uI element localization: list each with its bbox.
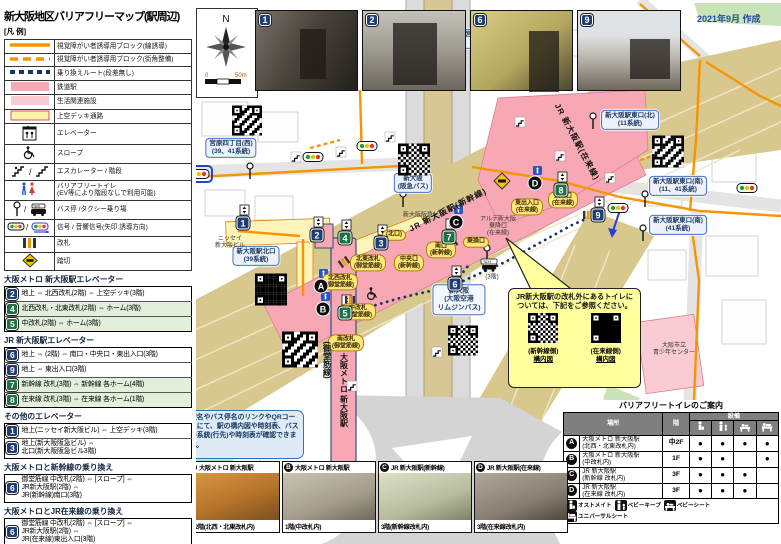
route-dotted-navy-icon [6, 67, 54, 77]
list-item: 6御堂筋線 中改札(2階) ⇔ [スロープ] ⇔ JR新大阪駅(2階) ⇔ JR… [5, 518, 192, 544]
toilet-photo-b: B大阪メトロ 新大阪駅 1階(中改札内) [282, 461, 376, 533]
legend-row: スロープ [5, 145, 192, 164]
stairs-icon [347, 381, 357, 391]
equip-mark: ● [689, 483, 711, 499]
legend-row: 生活関連施設 [5, 95, 192, 110]
toilet-place: 大阪メトロ 新大阪駅 (中改札内) [580, 451, 663, 467]
list-heading-other-elevators: その他のエレベーター [4, 411, 193, 422]
toilet-floor: 3F [663, 467, 689, 483]
zairaisen-transfer-list: 6御堂筋線 中改札(2階) ⇔ [スロープ] ⇔ JR新大阪駅(2階) ⇔ JR… [4, 518, 192, 544]
toilet-floor: 中2F [663, 435, 689, 451]
list-item: 2地上 ⇔ 北西改札(2階) ⇔ 上空デッキ(3階) [5, 287, 192, 302]
photo-badge-2: 2 [366, 14, 378, 26]
equip-mark: ● [756, 435, 778, 451]
elevator-number-badge: 6 [6, 482, 18, 494]
stairs-icon [515, 117, 525, 127]
elevator-icon [446, 219, 455, 229]
equip-mark: ● [712, 451, 734, 467]
ticket-gate-icon [6, 237, 54, 249]
equip-legend: オストメイトベビーキープベビーシートユニバーサルシート [564, 499, 779, 524]
equip-mark [734, 451, 756, 467]
elevator-icon [240, 205, 249, 215]
elevator-icon [558, 172, 567, 182]
callout-text: JR新大阪駅の改札外にあるトイレに ついては、下記をご参照ください。 [512, 292, 637, 311]
toilet-photo-d: DJR 新大阪駅(在来線) 3階(在来線改札内) [474, 461, 568, 533]
elevator-number-badge: 1 [6, 425, 18, 437]
legend-row: 踏切 [5, 252, 192, 271]
metro-elevator-list: 2地上 ⇔ 北西改札(2階) ⇔ 上空デッキ(3階) 4北西改札・北東改札(2階… [4, 286, 192, 332]
toilet-icon [454, 205, 463, 214]
legend-row: 上空デッキ通路 [5, 109, 192, 124]
signal-icon: / [6, 220, 54, 233]
list-item: 3地上(新大阪阪急ビル) ⇔ 北口(新大阪阪急ビル3階) [5, 439, 192, 459]
qr-info-callout: 駅名やバス停名のリンクやQRコードにて、駅の構内図や時刻表、バスの系統(行先)や… [186, 410, 304, 459]
list-item: 4北西改札・北東改札(2階) ⇔ ホーム(3階) [5, 302, 192, 317]
railway-station-swatch [6, 81, 54, 92]
barrier-free-toilet-icon [6, 181, 54, 197]
elevator-photo-1: 1 [255, 10, 358, 91]
list-heading-shinkansen-transfer: 大阪メトロと新幹線の乗り換え [4, 462, 193, 473]
compass-box: N 0 50m [196, 8, 258, 98]
toilet-place: JR 新大阪駅 (新幹線 改札内) [580, 467, 663, 483]
toilet-photo-cards: A大阪メトロ 新大阪駅 中2階(北西・北東改札内) B大阪メトロ 新大阪駅 1階… [186, 461, 568, 533]
equip-mark [756, 483, 778, 499]
toilet-photo-image [379, 473, 471, 520]
compass-north-label: N [222, 14, 229, 25]
legend-row: /TAXIバス停 /タクシー乗り場 [5, 200, 192, 220]
equip-mark: ● [712, 435, 734, 451]
legend-row: エレベーター [5, 124, 192, 145]
equip-mark: ● [756, 451, 778, 467]
stairs-icon [291, 152, 301, 162]
toilet-photo-c: CJR 新大阪駅(新幹線) 3階(新幹線改札内) [378, 461, 472, 533]
equip-mark: ● [734, 483, 756, 499]
list-item: 9地上 ⇔ 東出入口(3階) [5, 363, 192, 378]
page-title: 新大阪地区バリアフリーマップ(駅周辺) [4, 8, 193, 24]
elevator-icon [452, 266, 461, 276]
elevator-number-badge: 5 [6, 318, 18, 330]
equip-mark: ● [689, 451, 711, 467]
equip-mark: ● [734, 435, 756, 451]
scale-bar-icon: 0 50m [205, 73, 247, 84]
toilet-icon [319, 269, 328, 278]
list-heading-metro-elevators: 大阪メトロ 新大阪駅エレベーター [4, 274, 193, 285]
photo-badge-9: 9 [581, 14, 593, 26]
col-equip: 設備 [689, 413, 778, 421]
list-item: 1地上(ニッセイ新大阪ビル) ⇔ 上空デッキ(3階) [5, 424, 192, 439]
toilet-photo-image [475, 473, 567, 520]
letter-badge-d: D [476, 463, 485, 472]
toilet-photo-image [187, 473, 279, 520]
letter-badge-c: C [380, 463, 389, 472]
ostomate-icon [689, 421, 711, 435]
list-heading-zairaisen-transfer: 大阪メトロとJR在来線の乗り換え [4, 506, 193, 517]
elevator-icon [6, 124, 54, 141]
list-item: 7新幹線 改札(3階) ⇔ 新幹線 各ホーム(4階) [5, 378, 192, 393]
elevator-number-badge: 7 [6, 379, 18, 391]
qr-code-icon [528, 313, 558, 343]
elevator-icon [378, 225, 387, 235]
qr-code-shinkansen [528, 313, 558, 348]
legend-row: バリアフリートイレ (EV等により階段なしで利用可能) [5, 181, 192, 201]
elevator-photo-6: 6 [470, 10, 573, 91]
elevator-number-badge: 8 [6, 394, 18, 406]
list-heading-jr-elevators: JR 新大阪駅エレベーター [4, 335, 193, 346]
legend-row: 乗り換えルート(段差無し) [5, 67, 192, 81]
elevator-icon [314, 217, 323, 227]
scale-50m: 50m [235, 73, 247, 79]
toilet-table-row: B大阪メトロ 新大阪駅 (中改札内)1F●●● [564, 451, 779, 467]
elevator-number-badge: 3 [6, 442, 18, 454]
equip-mark: ● [712, 483, 734, 499]
toilet-table-row: A大阪メトロ 新大阪駅 (北西・北東改札内)中2F●●●● [564, 435, 779, 451]
railroad-crossing-icon [6, 253, 54, 268]
elevator-number-badge: 9 [6, 364, 18, 376]
qr-code-icon [591, 313, 621, 343]
svg-text:/: / [26, 223, 29, 232]
equip-mark: ● [689, 467, 711, 483]
photo-badge-6: 6 [474, 14, 486, 26]
sky-deck-swatch [6, 110, 54, 121]
toilet-table-row: CJR 新大阪駅 (新幹線 改札内)3F●●● [564, 467, 779, 483]
equip-mark: ● [712, 467, 734, 483]
toilet-place: JR 新大阪駅 (在来線 改札内) [580, 483, 663, 499]
shinkansen-transfer-list: 6御堂筋線 中改札(2階) ⇔ [スロープ] ⇔ JR新大阪駅(2階) ⇔ JR… [4, 474, 192, 503]
svg-text:TAXI: TAXI [483, 260, 491, 264]
legend-row: 鉄道駅 [5, 80, 192, 95]
line-dashed-orange-icon [6, 54, 54, 64]
bus-taxi-icon: /TAXI [6, 201, 54, 217]
toilet-table-title: バリアフリートイレのご案内 [563, 400, 779, 411]
col-place: 場所 [564, 413, 663, 436]
equip-mark [756, 467, 778, 483]
elevator-number-badge: 2 [6, 288, 18, 300]
baby-sheet-icon [734, 421, 756, 435]
jr-elevator-list: 6地上 ⇔ (2階) ⇔ 南口・中央口・東出入口(3階) 9地上 ⇔ 東出入口(… [4, 347, 192, 408]
toilet-photo-a: A大阪メトロ 新大阪駅 中2階(北西・北東改札内) [186, 461, 280, 533]
elevator-icon [342, 220, 351, 230]
legend-table: 視覚障がい者誘導用ブロック(線誘導) 視覚障がい者誘導用ブロック(街角整備) 乗… [4, 39, 192, 271]
stairs-icon [605, 173, 615, 183]
stairs-icon [385, 132, 395, 142]
qr-label-shinkansen: (新幹線側)構内図 [528, 348, 558, 365]
stairs-icon [432, 347, 442, 357]
station-entrance-photo-9: 9 [577, 10, 681, 91]
list-item: 6地上 ⇔ (2階) ⇔ 南口・中央口・東出入口(3階) [5, 348, 192, 363]
traffic-signal-icon [357, 142, 377, 151]
svg-text:TAXI: TAXI [33, 204, 40, 208]
universal-sheet-icon [756, 421, 778, 435]
legend-row: /信号 / 音響信号(矢印:誘導方向) [5, 220, 192, 237]
elevator-number-badge: 6 [6, 349, 18, 361]
life-facility-swatch [6, 95, 54, 106]
toilet-photo-image [283, 473, 375, 520]
traffic-signal-icon [737, 184, 757, 193]
created-date: 2021年9月 作成 [697, 12, 761, 25]
stairs-icon [336, 147, 346, 157]
elevator-number-badge: 6 [6, 526, 18, 538]
equip-mark: ● [689, 435, 711, 451]
photo-badge-1: 1 [259, 14, 271, 26]
legend-row: 改札 [5, 236, 192, 252]
row-letter-badge: A [564, 435, 580, 451]
toilet-floor: 3F [663, 483, 689, 499]
ticket-gate-icon [583, 211, 593, 219]
toilet-place: 大阪メトロ 新大阪駅 (北西・北東改札内) [580, 435, 663, 451]
letter-badge-b: B [284, 463, 293, 472]
other-elevator-list: 1地上(ニッセイ新大阪ビル) ⇔ 上空デッキ(3階) 3地上(新大阪阪急ビル) … [4, 423, 192, 459]
svg-text:/: / [24, 205, 27, 214]
barrier-free-map-page: TAXI 宮原四丁目(西) (39、41系統)宮原四丁目(東) (41系統)新大… [0, 0, 781, 544]
toilet-floor: 1F [663, 451, 689, 467]
toilet-icon [533, 166, 542, 175]
bus-stop-icon [642, 191, 648, 207]
scale-zero: 0 [205, 73, 209, 79]
qr-code-zairaisen [591, 313, 621, 348]
baby-keep-icon [712, 421, 734, 435]
ticket-gate-icon [345, 296, 355, 304]
list-item: 8在来線 改札(3階) ⇔ 在来線 各ホーム(1階) [5, 393, 192, 408]
list-item: 5中改札(2階) ⇔ ホーム(3階) [5, 317, 192, 332]
legend-heading: [凡 例] [4, 26, 193, 37]
toilet-icon [321, 292, 330, 301]
legend-row: 視覚障がい者誘導用ブロック(線誘導) [5, 40, 192, 54]
elevator-number-badge: 4 [6, 303, 18, 315]
list-item: 6御堂筋線 中改札(2階) ⇔ [スロープ] ⇔ JR新大阪駅(2階) ⇔ JR… [5, 474, 192, 502]
left-panel: 新大阪地区バリアフリーマップ(駅周辺) [凡 例] 視覚障がい者誘導用ブロック(… [0, 0, 196, 544]
qr-label-zairaisen: (在来線側)構内図 [591, 348, 621, 365]
slope-icon [6, 145, 54, 160]
elevator-photo-2: 2 [362, 10, 466, 91]
col-floor: 階 [663, 413, 689, 436]
toilet-table-row: DJR 新大阪駅 (在来線 改札内)3F●●● [564, 483, 779, 499]
escalator-stairs-icon: / [6, 164, 54, 178]
compass-rose-icon [206, 27, 246, 67]
traffic-signal-icon [608, 204, 628, 213]
stairs-icon [555, 151, 565, 161]
legend-row: 視覚障がい者誘導用ブロック(街角整備) [5, 53, 192, 67]
barrier-free-toilet-table: バリアフリートイレのご案内 場所 階 設備 A大阪メトロ 新大阪駅 (北西・北東… [563, 400, 779, 524]
equip-mark: ● [734, 467, 756, 483]
line-solid-orange-icon [6, 40, 54, 50]
toilet-qr-callout: JR新大阪駅の改札外にあるトイレに ついては、下記をご参照ください。 (新幹線側… [508, 288, 641, 388]
traffic-signal-icon [303, 153, 323, 162]
elevator-icon [595, 197, 604, 207]
svg-text:/: / [29, 167, 32, 177]
legend-row: /エスカレーター / 階段 [5, 163, 192, 181]
